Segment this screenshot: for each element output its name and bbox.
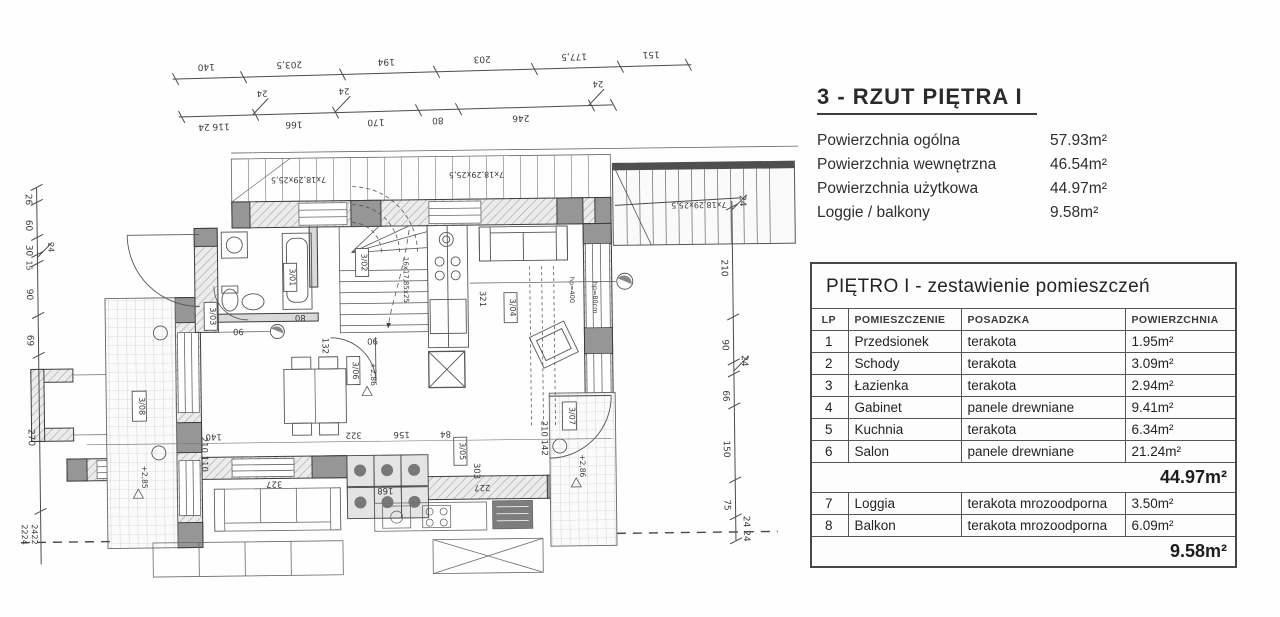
svg-text:2224: 2224 [20,524,29,544]
svg-text:hp=80cm: hp=80cm [591,282,599,314]
svg-text:322: 322 [345,429,361,439]
page-title: 3 - RZUT PIĘTRA I [817,84,1037,115]
area-row: Loggie / balkony 9.58m² [817,201,1237,225]
cell-lp: 1 [812,331,848,353]
svg-text:24: 24 [256,88,267,98]
svg-text:90: 90 [233,326,244,336]
svg-text:90: 90 [720,339,730,351]
cell-area: 21.24m² [1125,441,1235,463]
cell-lp: 4 [812,397,848,419]
svg-text:84: 84 [440,428,451,438]
cell-room: Przedsionek [848,331,961,353]
area-value: 57.93m² [1050,129,1107,153]
area-row: Powierzchnia użytkowa 44.97m² [817,177,1237,201]
rooms-table-grid: LP POMIESZCZENIE POSADZKA POWIERZCHNIA 1… [812,309,1235,566]
rooms-table: PIĘTRO I - zestawienie pomieszczeń LP PO… [810,262,1237,568]
right-loggia: 3/07 +2,86 [549,392,617,546]
cell-area: 6.09m² [1125,515,1235,537]
cell-floor: panele drewniane [961,441,1125,463]
subtotal-balcony: 9.58m² [812,537,1235,567]
cell-area: 9.41m² [1125,397,1235,419]
floor-plan-drawing: 140 203,5 194 203 177,5 151 24 24 2 [0,0,805,617]
cell-floor: terakota [961,353,1125,375]
document-page: 140 203,5 194 203 177,5 151 24 24 2 [0,0,1280,617]
svg-text:270: 270 [26,429,36,447]
area-row: Powierzchnia ogólna 57.93m² [817,129,1237,153]
svg-text:3/05: 3/05 [458,442,467,460]
area-label: Powierzchnia użytkowa [817,177,1050,201]
svg-text:2422: 2422 [30,524,39,544]
table-row: 4 Gabinet panele drewniane 9.41m² [812,397,1235,419]
table-row: 2 Schody terakota 3.09m² [812,353,1235,375]
cell-floor: panele drewniane [961,397,1125,419]
subtotal-row-main: 44.97m² [812,463,1235,493]
cell-floor: terakota [961,419,1125,441]
col-lp: LP [812,309,848,331]
table-row: 7 Loggia terakota mrozoodporna 3.50m² [812,493,1235,515]
right-dimension-chain: 24 210 90 24 66 150 75 24 24 [615,195,751,546]
area-row: Powierzchnia wewnętrzna 46.54m² [817,153,1237,177]
col-area: POWIERZCHNIA [1125,309,1235,331]
svg-text:+2,85: +2,85 [140,466,149,489]
svg-text:3/07: 3/07 [567,407,576,425]
kitchen [427,225,469,387]
svg-text:75: 75 [721,499,731,511]
cell-floor: terakota [961,331,1125,353]
svg-text:80: 80 [295,312,306,322]
svg-text:177,5: 177,5 [561,51,587,62]
svg-text:170: 170 [367,116,385,126]
cell-floor: terakota [961,375,1125,397]
svg-text:166: 166 [285,119,303,129]
svg-text:227: 227 [474,482,490,492]
balcony-stair-note-2: 7x18,29x25,5 [449,170,504,180]
room-tag-stairs: 3/02 [359,253,368,271]
svg-text:3/08: 3/08 [137,397,146,415]
svg-text:151: 151 [642,49,659,59]
left-loggia: 3/08 +2,85 [105,298,178,549]
svg-text:+2,86: +2,86 [369,363,378,386]
cell-floor: terakota mrozoodporna [961,515,1125,537]
svg-text:24: 24 [592,78,603,88]
cell-room: Salon [848,441,961,463]
table-row: 8 Balkon terakota mrozoodporna 6.09m² [812,515,1235,537]
svg-text:80: 80 [432,115,444,125]
cell-lp: 5 [812,419,848,441]
svg-text:24: 24 [46,242,55,252]
cell-lp: 6 [812,441,848,463]
balcony-stair-note: 7x18,29x25,5 [271,175,326,185]
room-tag-salon: 3/04 [508,299,517,317]
svg-text:60: 60 [23,220,33,232]
cell-room: Balkon [848,515,961,537]
info-block: 3 - RZUT PIĘTRA I Powierzchnia ogólna 57… [817,84,1237,225]
table-header-row: LP POMIESZCZENIE POSADZKA POWIERZCHNIA [812,309,1235,331]
svg-text:3/03: 3/03 [208,307,217,325]
cell-lp: 2 [812,353,848,375]
svg-text:116 24: 116 24 [198,121,230,132]
svg-text:156: 156 [393,429,409,439]
cell-lp: 3 [812,375,848,397]
svg-text:140: 140 [197,61,215,71]
col-floor: POSADZKA [961,309,1125,331]
table-row: 1 Przedsionek terakota 1.95m² [812,331,1235,353]
top-dimension-chains: 140 203,5 194 203 177,5 151 24 24 2 [172,48,693,132]
area-summary: Powierzchnia ogólna 57.93m² Powierzchnia… [817,129,1237,225]
subtotal-row-balcony: 9.58m² [812,537,1235,567]
svg-text:24: 24 [338,85,349,95]
cell-lp: 7 [812,493,848,515]
svg-text:203: 203 [473,53,490,63]
svg-text:3/06: 3/06 [351,362,360,380]
cell-room: Łazienka [848,375,961,397]
svg-text:321: 321 [477,291,487,307]
svg-text:132: 132 [319,338,329,354]
area-label: Loggie / balkony [817,201,1050,225]
svg-text:3/01: 3/01 [288,268,297,286]
svg-text:327: 327 [266,478,282,488]
svg-text:194: 194 [377,56,395,66]
cell-room: Schody [848,353,961,375]
cell-area: 3.09m² [1125,353,1235,375]
cell-area: 6.34m² [1125,419,1235,441]
svg-text:24: 24 [739,355,749,367]
cell-room: Loggia [848,493,961,515]
svg-text:90: 90 [367,335,378,345]
svg-text:210 142: 210 142 [538,421,548,456]
svg-text:66: 66 [720,390,730,402]
svg-text:210 110: 210 110 [199,437,209,472]
area-value: 46.54m² [1050,153,1107,177]
svg-text:69: 69 [24,335,34,347]
svg-text:15: 15 [24,260,33,270]
cell-area: 2.94m² [1125,375,1235,397]
svg-text:203,5: 203,5 [276,59,302,70]
table-row: 6 Salon panele drewniane 21.24m² [812,441,1235,463]
svg-text:26: 26 [23,194,33,206]
svg-text:168: 168 [377,485,393,495]
cell-room: Kuchnia [848,419,961,441]
svg-text:246: 246 [512,112,530,122]
svg-text:hp=400: hp=400 [568,277,576,303]
subtotal-main: 44.97m² [812,463,1235,493]
area-value: 44.97m² [1050,177,1107,201]
table-row: 5 Kuchnia terakota 6.34m² [812,419,1235,441]
svg-text:30: 30 [23,245,33,257]
cell-floor: terakota mrozoodporna [961,493,1125,515]
external-stairs: 7x18,29x25,5 [612,161,795,245]
svg-text:24: 24 [737,195,747,207]
svg-text:210: 210 [719,259,729,277]
stair-note-main: 16x17,85x25 [401,257,410,303]
svg-text:24 24: 24 24 [741,516,751,542]
table-row: 3 Łazienka terakota 2.94m² [812,375,1235,397]
svg-text:90: 90 [24,289,34,301]
dining-table [284,357,347,436]
svg-text:+2,86: +2,86 [578,454,587,477]
cell-area: 3.50m² [1125,493,1235,515]
col-room: POMIESZCZENIE [848,309,961,331]
plan-body: 7x18,29x25,5 7x18,29x25,5 7x18,29x25,5 [15,146,803,579]
cell-room: Gabinet [848,397,961,419]
cell-lp: 8 [812,515,848,537]
area-label: Powierzchnia ogólna [817,129,1050,153]
svg-text:150: 150 [721,440,731,458]
svg-text:303: 303 [471,463,481,479]
cell-area: 1.95m² [1125,331,1235,353]
area-value: 9.58m² [1050,201,1098,225]
area-label: Powierzchnia wewnętrzna [817,153,1050,177]
table-title: PIĘTRO I - zestawienie pomieszczeń [812,264,1235,309]
